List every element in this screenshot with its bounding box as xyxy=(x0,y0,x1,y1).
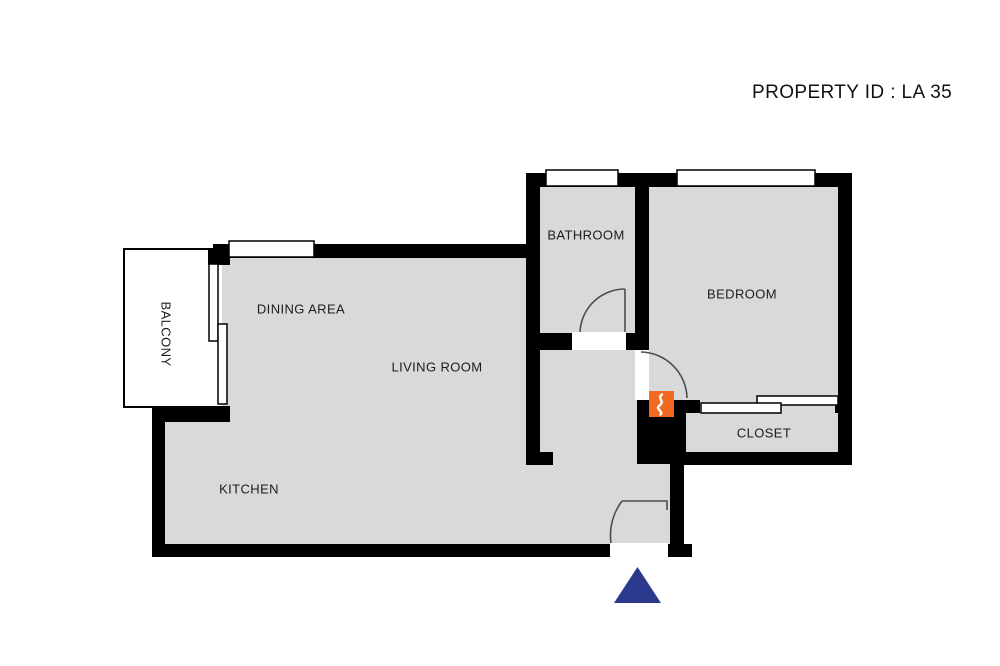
room-label-bedroom: BEDROOM xyxy=(707,287,777,302)
room-label-kitchen: KITCHEN xyxy=(219,482,279,497)
kitchen-floor xyxy=(158,412,534,550)
room-label-closet: CLOSET xyxy=(737,426,791,441)
balcony-slider-panel-outer xyxy=(209,264,218,341)
bathroom-window xyxy=(546,170,618,186)
wall-bathroom-bottom-right xyxy=(626,333,649,350)
hallway-floor xyxy=(534,338,637,468)
balcony-slider-panel-inner xyxy=(218,324,227,404)
wall-entry-right xyxy=(670,457,684,557)
wall-right xyxy=(838,173,852,464)
entrance-arrow-icon xyxy=(614,567,661,603)
room-label-balcony: BALCONY xyxy=(159,302,174,367)
wall-living-right xyxy=(526,173,540,465)
room-label-living: LIVING ROOM xyxy=(391,360,482,375)
room-label-dining: DINING AREA xyxy=(257,302,345,317)
water-heater-icon xyxy=(649,391,674,417)
entry-floor xyxy=(534,455,674,550)
wall-bathroom-bottom-left xyxy=(526,333,572,350)
floor-plan: PROPERTY ID : LA 35 BALCONY DINING AREA … xyxy=(0,0,1000,666)
wall-closet-bottom xyxy=(670,452,852,465)
wall-bath-bedroom-divider xyxy=(635,173,649,350)
wall-closet-left-stub xyxy=(680,400,700,413)
bedroom-window xyxy=(677,170,815,186)
front-door-opening xyxy=(610,543,668,558)
wall-living-right-endcap xyxy=(526,452,553,465)
wall-kitchen-left xyxy=(152,406,165,557)
bedroom-door-opening xyxy=(635,350,649,400)
dining-window xyxy=(229,241,314,257)
closet-slider-panel-lower xyxy=(701,403,781,413)
property-id-label: PROPERTY ID : LA 35 xyxy=(752,82,952,104)
bathroom-floor xyxy=(534,180,637,340)
room-label-bathroom: BATHROOM xyxy=(547,228,624,243)
wall-balcony-top-corner xyxy=(208,248,230,265)
wall-bottom-left xyxy=(152,544,610,557)
bathroom-door-opening xyxy=(572,332,626,350)
